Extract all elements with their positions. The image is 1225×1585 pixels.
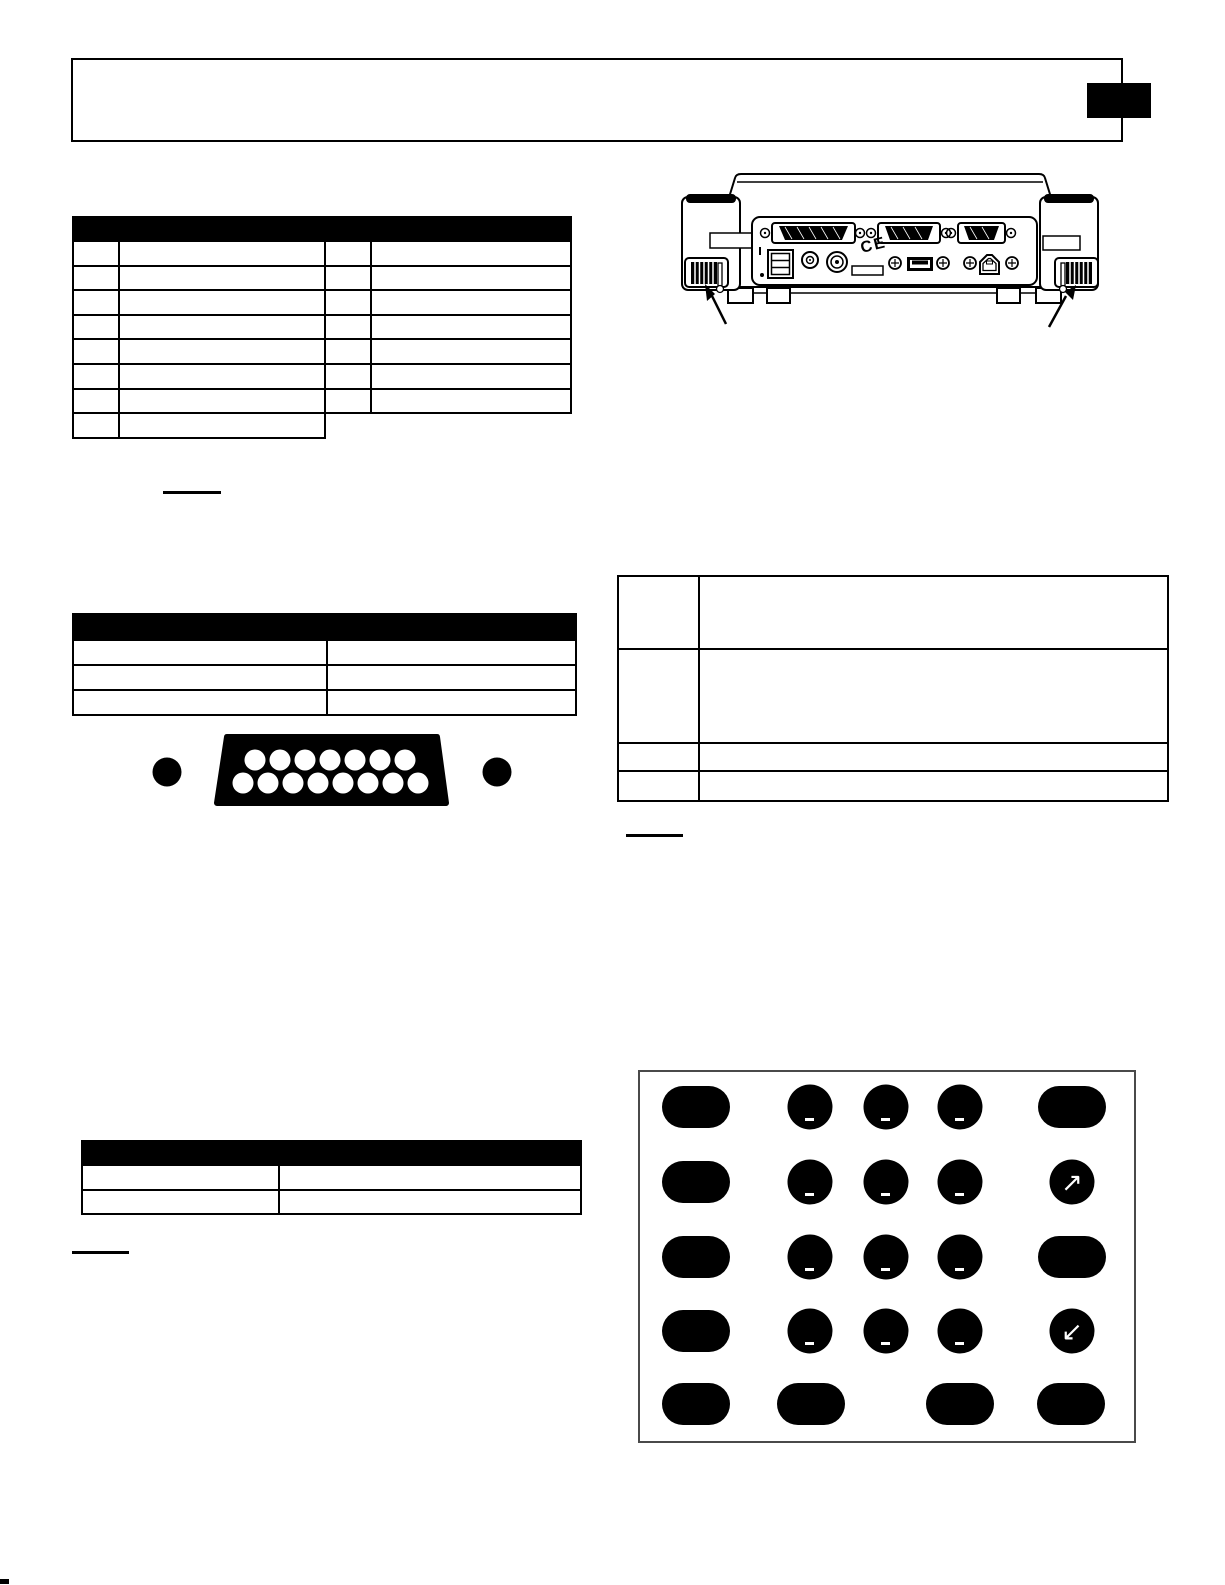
keypad-round-button bbox=[864, 1309, 909, 1354]
page-corner-mark bbox=[0, 1579, 9, 1584]
keypad-round-button bbox=[864, 1160, 909, 1205]
key-label-remnant bbox=[805, 1118, 814, 1121]
table-cell bbox=[73, 665, 327, 690]
table-cell bbox=[699, 576, 1168, 649]
keypad-pill-button bbox=[662, 1236, 730, 1278]
keypad-pill-button bbox=[1038, 1236, 1106, 1278]
table-cell bbox=[119, 364, 325, 389]
table-cell bbox=[371, 241, 571, 266]
keypad-round-button bbox=[938, 1085, 983, 1130]
table-cell bbox=[325, 339, 371, 364]
bottom-table-header bbox=[82, 1141, 581, 1165]
description-table bbox=[617, 575, 1169, 802]
table-row bbox=[73, 364, 571, 389]
foot-tab bbox=[997, 288, 1020, 303]
table-row bbox=[73, 315, 571, 340]
key-label-remnant bbox=[881, 1268, 890, 1271]
table-cell bbox=[371, 266, 571, 291]
screw-hole bbox=[483, 758, 512, 787]
table-cell bbox=[73, 389, 119, 414]
table-row bbox=[618, 649, 1168, 743]
table-cell bbox=[279, 1190, 581, 1215]
table-row bbox=[73, 413, 571, 438]
table-cell bbox=[618, 576, 699, 649]
foot-tab bbox=[767, 288, 790, 303]
table-cell bbox=[82, 1165, 279, 1190]
table-row bbox=[73, 290, 571, 315]
key-label-remnant bbox=[881, 1118, 890, 1121]
legend-table bbox=[72, 216, 572, 439]
connector-table-header bbox=[73, 614, 576, 640]
key-label-remnant bbox=[805, 1193, 814, 1196]
table-cell bbox=[119, 241, 325, 266]
table-row bbox=[618, 743, 1168, 771]
note-underline bbox=[626, 834, 683, 837]
connector-table bbox=[72, 613, 577, 716]
keypad-pill-button bbox=[662, 1310, 730, 1352]
table-cell bbox=[371, 290, 571, 315]
table-cell bbox=[371, 389, 571, 414]
key-label-remnant bbox=[955, 1268, 964, 1271]
legend-table-header bbox=[73, 217, 571, 241]
db15-connector-diagram bbox=[130, 725, 520, 815]
diagonal-arrow-sw-icon: ↙ bbox=[1061, 1317, 1083, 1347]
table-cell bbox=[73, 290, 119, 315]
keypad-pill-button bbox=[1038, 1086, 1106, 1128]
table-cell bbox=[618, 649, 699, 743]
table-row bbox=[82, 1190, 581, 1215]
right-knurled-foot-icon bbox=[1055, 258, 1098, 293]
table-cell bbox=[618, 743, 699, 771]
table-cell bbox=[73, 315, 119, 340]
table-cell bbox=[119, 389, 325, 414]
table-cell bbox=[73, 690, 327, 715]
table-cell bbox=[73, 339, 119, 364]
table-cell bbox=[371, 413, 571, 438]
keypad-pill-button bbox=[1037, 1383, 1105, 1425]
keypad-pill-button bbox=[926, 1383, 994, 1425]
rear-panel-illustration: CE bbox=[655, 165, 1105, 335]
table-cell bbox=[325, 389, 371, 414]
table-cell bbox=[327, 640, 576, 665]
screw-hole bbox=[153, 758, 182, 787]
table-row bbox=[618, 771, 1168, 801]
left-post-label bbox=[710, 233, 753, 248]
table-cell bbox=[618, 771, 699, 801]
page-header-box bbox=[71, 58, 1123, 142]
key-label-remnant bbox=[881, 1193, 890, 1196]
table-cell bbox=[699, 771, 1168, 801]
keypad-round-button bbox=[864, 1235, 909, 1280]
bottom-table bbox=[81, 1140, 582, 1215]
table-cell bbox=[279, 1165, 581, 1190]
power-indicator-mark bbox=[759, 247, 761, 255]
table-cell bbox=[327, 690, 576, 715]
keypad-pill-button bbox=[777, 1383, 845, 1425]
key-label-remnant bbox=[955, 1342, 964, 1345]
table-cell bbox=[73, 413, 119, 438]
right-post-label bbox=[1043, 236, 1080, 250]
key-label-remnant bbox=[805, 1342, 814, 1345]
table-cell bbox=[73, 241, 119, 266]
table-row bbox=[618, 576, 1168, 649]
table-cell bbox=[119, 290, 325, 315]
key-label-remnant bbox=[955, 1118, 964, 1121]
table-row bbox=[73, 266, 571, 291]
table-row bbox=[73, 640, 576, 665]
table-cell bbox=[325, 266, 371, 291]
table-cell bbox=[73, 266, 119, 291]
panel-dot bbox=[760, 273, 764, 277]
keypad-round-button bbox=[938, 1235, 983, 1280]
table-cell bbox=[325, 315, 371, 340]
usb-a-port-icon bbox=[907, 257, 933, 271]
table-cell bbox=[325, 364, 371, 389]
keypad-round-button bbox=[938, 1309, 983, 1354]
device-lid bbox=[723, 174, 1057, 217]
keypad-round-button bbox=[788, 1085, 833, 1130]
table-cell bbox=[119, 413, 325, 438]
table-cell bbox=[119, 339, 325, 364]
key-label-remnant bbox=[955, 1193, 964, 1196]
usb-b-port-icon bbox=[980, 255, 999, 274]
table-row bbox=[73, 389, 571, 414]
keypad-round-button bbox=[788, 1160, 833, 1205]
table-cell bbox=[119, 315, 325, 340]
table-cell bbox=[699, 743, 1168, 771]
keypad-pill-button bbox=[662, 1161, 730, 1203]
table-row bbox=[73, 690, 576, 715]
table-row bbox=[73, 339, 571, 364]
table-cell bbox=[327, 665, 576, 690]
diagonal-arrow-ne-icon: ↗ bbox=[1061, 1168, 1083, 1198]
keypad-round-button bbox=[788, 1235, 833, 1280]
keypad-pill-button bbox=[662, 1383, 730, 1425]
table-cell bbox=[325, 290, 371, 315]
table-cell bbox=[73, 640, 327, 665]
keypad-round-button bbox=[938, 1160, 983, 1205]
table-row bbox=[73, 665, 576, 690]
table-cell bbox=[119, 266, 325, 291]
key-label-remnant bbox=[881, 1342, 890, 1345]
table-cell bbox=[325, 413, 371, 438]
table-cell bbox=[82, 1190, 279, 1215]
table-cell bbox=[325, 241, 371, 266]
key-label-remnant bbox=[805, 1268, 814, 1271]
table-cell bbox=[699, 649, 1168, 743]
table-cell bbox=[371, 315, 571, 340]
note-underline bbox=[163, 491, 221, 494]
manual-page: CE bbox=[0, 0, 1225, 1585]
table-cell bbox=[73, 364, 119, 389]
keypad-round-button bbox=[788, 1309, 833, 1354]
table-row bbox=[73, 241, 571, 266]
keypad-diagram: ↗↙ bbox=[638, 1070, 1136, 1443]
keypad-round-button bbox=[864, 1085, 909, 1130]
keypad-pill-button bbox=[662, 1086, 730, 1128]
table-row bbox=[82, 1165, 581, 1190]
table-cell bbox=[371, 339, 571, 364]
table-cell bbox=[371, 364, 571, 389]
note-underline bbox=[72, 1251, 129, 1254]
chapter-tab bbox=[1087, 83, 1151, 118]
